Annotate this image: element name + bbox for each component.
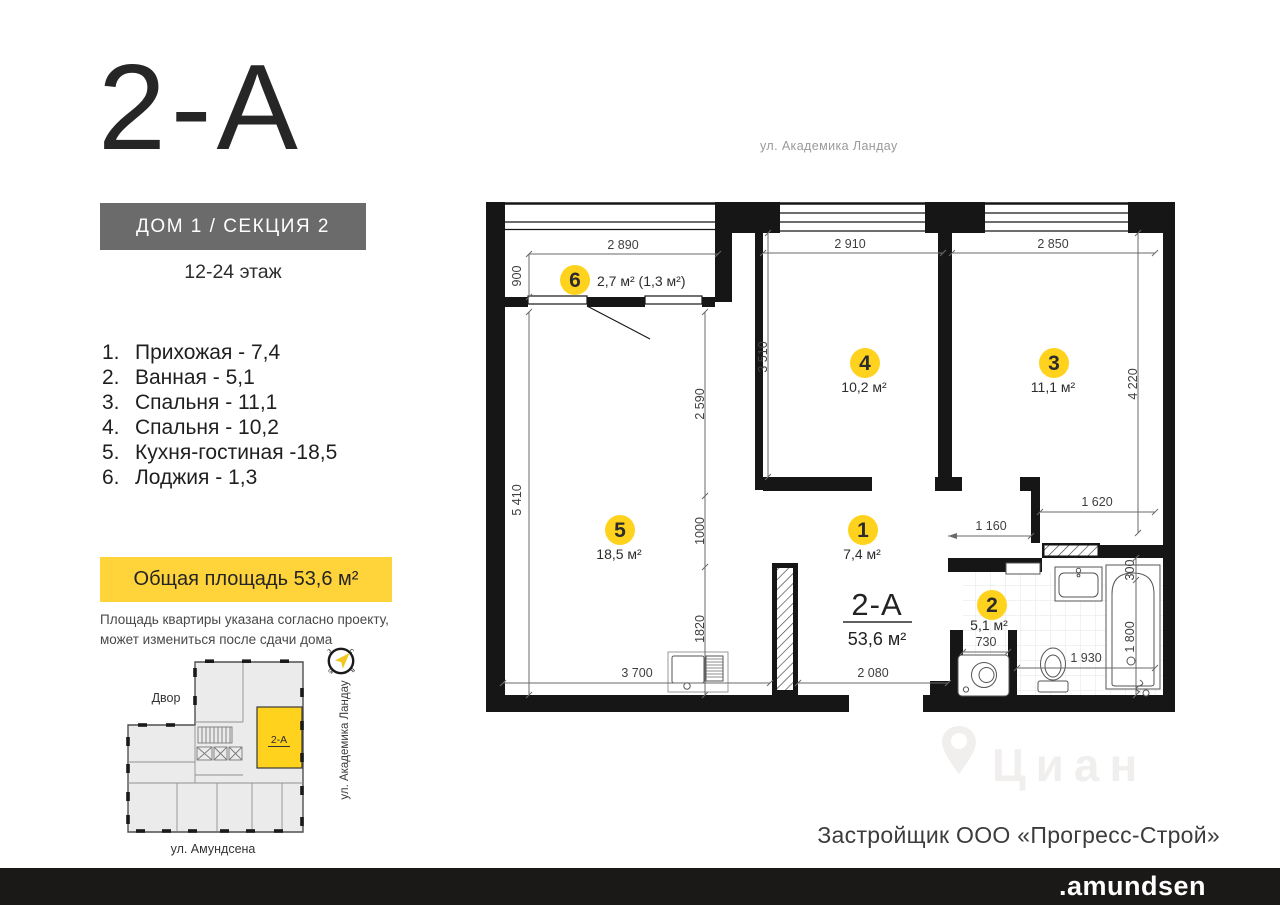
svg-text:3 700: 3 700 bbox=[621, 666, 652, 680]
svg-text:4: 4 bbox=[859, 352, 871, 375]
loggia-window bbox=[645, 296, 702, 304]
apartment-label: 2-А 53,6 м² bbox=[843, 587, 912, 649]
svg-text:730: 730 bbox=[976, 635, 997, 649]
svg-text:1 160: 1 160 bbox=[975, 519, 1006, 533]
floor-plan: 2 890 2 910 2 850 900 5 410 2 590 1000 1… bbox=[485, 195, 1185, 720]
highlighted-unit-label: 2-А bbox=[271, 734, 287, 746]
towel-radiator bbox=[1006, 563, 1040, 574]
street-bottom-label: ул. Амундсена bbox=[171, 842, 256, 856]
window-bands bbox=[505, 204, 1128, 232]
svg-text:300: 300 bbox=[1123, 560, 1137, 581]
svg-text:3: 3 bbox=[1048, 352, 1060, 375]
list-item: 2.Ванная - 5,1 bbox=[102, 365, 337, 390]
svg-text:5,1 м²: 5,1 м² bbox=[970, 617, 1008, 633]
svg-text:5 410: 5 410 bbox=[510, 484, 524, 515]
svg-text:1 930: 1 930 bbox=[1070, 651, 1101, 665]
bathroom-sink bbox=[1055, 567, 1102, 601]
developer-label: Застройщик ООО «Прогресс-Строй» bbox=[817, 822, 1220, 849]
total-area-badge: Общая площадь 53,6 м² bbox=[100, 557, 392, 602]
svg-text:5: 5 bbox=[614, 519, 626, 542]
building-mini-plan: 2-А Двор ул. Амундсена ул. Академика Лан… bbox=[100, 640, 380, 865]
watermark: Циан bbox=[938, 722, 1147, 792]
svg-text:2-А: 2-А bbox=[851, 587, 902, 622]
svg-text:3 510: 3 510 bbox=[756, 341, 770, 372]
room-list: 1.Прихожая - 7,4 2.Ванная - 5,1 3.Спальн… bbox=[102, 340, 337, 490]
list-item: 4.Спальня - 10,2 bbox=[102, 415, 337, 440]
svg-text:1 620: 1 620 bbox=[1081, 495, 1112, 509]
svg-text:2 590: 2 590 bbox=[693, 388, 707, 419]
list-item: 1.Прихожая - 7,4 bbox=[102, 340, 337, 365]
svg-text:2 910: 2 910 bbox=[834, 237, 865, 251]
svg-text:53,6 м²: 53,6 м² bbox=[848, 629, 906, 649]
svg-text:18,5 м²: 18,5 м² bbox=[596, 546, 642, 562]
building-section-badge: ДОМ 1 / СЕКЦИЯ 2 bbox=[100, 203, 366, 250]
svg-text:6: 6 bbox=[569, 269, 581, 292]
svg-text:10,2 м²: 10,2 м² bbox=[841, 379, 887, 395]
street-right-label: ул. Академика Ландау bbox=[339, 680, 351, 800]
svg-text:1000: 1000 bbox=[693, 517, 707, 545]
svg-text:7,4 м²: 7,4 м² bbox=[843, 546, 881, 562]
list-item: 3.Спальня - 11,1 bbox=[102, 390, 337, 415]
yard-label: Двор bbox=[152, 691, 181, 705]
brand-logo: .amundsen bbox=[1059, 868, 1206, 905]
svg-text:4 220: 4 220 bbox=[1126, 368, 1140, 399]
svg-text:11,1 м²: 11,1 м² bbox=[1031, 379, 1076, 395]
svg-text:2,7 м² (1,3 м²): 2,7 м² (1,3 м²) bbox=[597, 273, 686, 289]
list-item: 5.Кухня-гостиная -18,5 bbox=[102, 440, 337, 465]
compass-icon: с в ю з bbox=[326, 647, 356, 675]
loggia-window bbox=[528, 296, 587, 304]
svg-text:900: 900 bbox=[510, 266, 524, 287]
svg-text:2 890: 2 890 bbox=[607, 238, 638, 252]
footer-bar: .amundsen bbox=[0, 868, 1280, 905]
page-title: 2-А bbox=[98, 40, 303, 174]
svg-text:2 850: 2 850 bbox=[1037, 237, 1068, 251]
street-top-label: ул. Академика Ландау bbox=[760, 139, 898, 153]
svg-text:1820: 1820 bbox=[693, 615, 707, 643]
svg-text:1: 1 bbox=[857, 519, 869, 542]
svg-text:1 800: 1 800 bbox=[1123, 621, 1137, 652]
balcony-door-swing bbox=[587, 306, 650, 339]
svg-text:2 080: 2 080 bbox=[857, 666, 888, 680]
floors-label: 12-24 этаж bbox=[100, 261, 366, 284]
list-item: 6.Лоджия - 1,3 bbox=[102, 465, 337, 490]
kitchen-sink bbox=[668, 652, 728, 692]
toilet bbox=[1038, 648, 1068, 692]
washing-machine bbox=[958, 655, 1009, 696]
svg-text:2: 2 bbox=[986, 594, 998, 617]
pin-icon bbox=[938, 722, 980, 792]
